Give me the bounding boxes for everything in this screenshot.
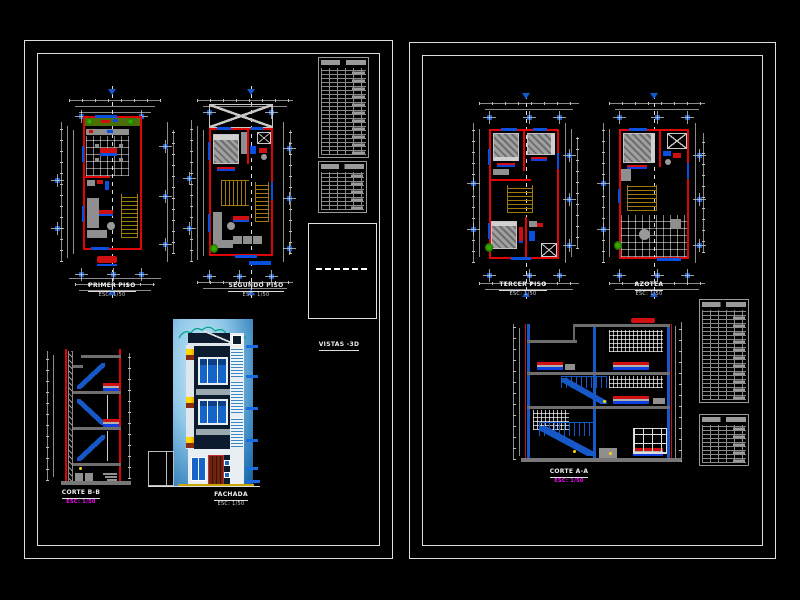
grid-marker [163,194,168,199]
lamp-icon [79,467,82,470]
stairs [627,185,657,211]
plant-icon [614,241,622,250]
views-3d-box [308,223,377,319]
grid-marker [655,273,660,278]
tercer-piso-caption: TERCER PISO ESC: 1/50 [483,281,563,297]
level-marker [246,345,258,348]
stairs [221,180,249,206]
corte-aa-caption: CORTE A-A ESC: 1/50 [529,468,609,484]
grid-marker [55,226,60,231]
grid-marker [617,115,622,120]
lamp-icon [573,450,576,453]
facade-door [208,455,224,486]
grid-marker [697,197,702,202]
drawing-corte-aa [513,316,689,471]
primer-piso-scale: ESC: 1/50 [72,292,152,298]
segundo-piso-title: SEGUNDO PISO [228,282,283,292]
fachada-scale: ESC: 1/50 [191,501,271,507]
bed [103,383,119,391]
plant-icon [210,244,218,253]
grid-marker [557,115,562,120]
drawing-tercer-piso [471,93,597,303]
azotea-caption: AZOTEA ESC: 1/50 [609,281,689,297]
grid-marker [617,273,622,278]
section-arrow-a-top [108,89,116,95]
fachada-title: FACHADA [214,491,248,501]
round-table [639,229,650,240]
grid-marker [487,115,492,120]
grid-marker [567,197,572,202]
views-3d-label: VISTAS -3D [319,341,360,351]
azotea-scale: ESC: 1/50 [609,291,689,297]
roof-item [631,318,655,323]
grid-marker [163,144,168,149]
sheet-left: VISTAS -3D [24,40,393,559]
grid-marker [685,115,690,120]
grid-marker [567,243,572,248]
level-marker [246,467,258,470]
grid-marker [187,176,192,181]
drawing-primer-piso [55,86,190,301]
grid-marker [55,178,60,183]
lamp-icon [603,400,606,403]
stairs [255,182,269,222]
drawing-fachada [148,319,266,489]
tree-icon [127,118,134,125]
bed [103,419,119,427]
grid-marker [697,153,702,158]
grid-marker [655,115,660,120]
facade-window-2 [198,399,228,425]
level-marker [246,407,258,410]
views-3d-caption: VISTAS -3D [299,341,379,351]
grid-marker [601,181,606,186]
bed [613,362,649,370]
corte-bb-caption: CORTE B-B ESC: 1/50 [41,489,121,505]
level-marker [246,439,258,442]
drawing-azotea [601,93,723,303]
tree-icon [86,118,93,125]
roof-brace [209,104,273,128]
tercer-piso-title: TERCER PISO [499,281,546,291]
level-marker [246,375,258,378]
schedule-table-1 [318,57,369,158]
grid-marker [187,226,192,231]
grid-marker [557,273,562,278]
window-grid [633,428,667,454]
sheet-right: TERCER PISO ESC: 1/50 AZOTEA ESC: 1/50 [409,42,776,559]
stairs [121,194,138,238]
grid-marker [487,273,492,278]
schedule-table-3 [699,299,749,403]
plant-icon [485,243,493,252]
grid-marker [79,272,84,277]
corte-bb-scale: ESC: 1/50 [41,499,121,505]
facade-small-window [224,460,230,466]
neighbor-wall [148,451,174,486]
grid-marker [685,273,690,278]
grid-marker [111,272,116,277]
primer-piso-caption: PRIMER PISO ESC: 1/50 [72,282,152,298]
section-arrow-a-top [522,93,530,99]
grid-marker [527,115,532,120]
bed [537,362,563,370]
grid-marker [697,243,702,248]
grid-marker [567,153,572,158]
car [97,256,117,263]
corte-bb-title: CORTE B-B [62,489,100,499]
corte-aa-scale: ESC: 1/50 [529,478,609,484]
grid-marker [287,146,292,151]
primer-piso-title: PRIMER PISO [88,282,135,292]
schedule-table-4 [699,414,749,466]
lamp-icon [609,452,612,455]
section-arrow-a-top [650,93,658,99]
tercer-piso-scale: ESC: 1/50 [483,291,563,297]
segundo-piso-scale: ESC: 1/50 [216,292,296,298]
cad-canvas: VISTAS -3D [0,0,800,600]
stairs [507,185,533,213]
facade-window-1 [198,357,228,385]
fachada-caption: FACHADA ESC: 1/50 [191,491,271,507]
grid-marker [527,273,532,278]
bed [613,396,649,404]
segundo-piso-caption: SEGUNDO PISO ESC: 1/50 [216,282,296,298]
corte-aa-title: CORTE A-A [550,468,589,478]
grid-marker [471,227,476,232]
facade-small-window [224,472,230,478]
schedule-table-2 [318,161,367,213]
grid-marker [269,274,274,279]
grid-marker [287,246,292,251]
grid-marker [139,272,144,277]
grid-marker [237,274,242,279]
grid-marker [163,242,168,247]
grid-marker [601,227,606,232]
grid-marker [471,181,476,186]
drawing-corte-bb [45,341,140,489]
drawing-segundo-piso [187,86,307,301]
section-arrow-a-top [247,89,255,95]
grid-marker [207,274,212,279]
azotea-title: AZOTEA [635,281,664,291]
level-marker [246,480,260,483]
grid-marker [287,196,292,201]
